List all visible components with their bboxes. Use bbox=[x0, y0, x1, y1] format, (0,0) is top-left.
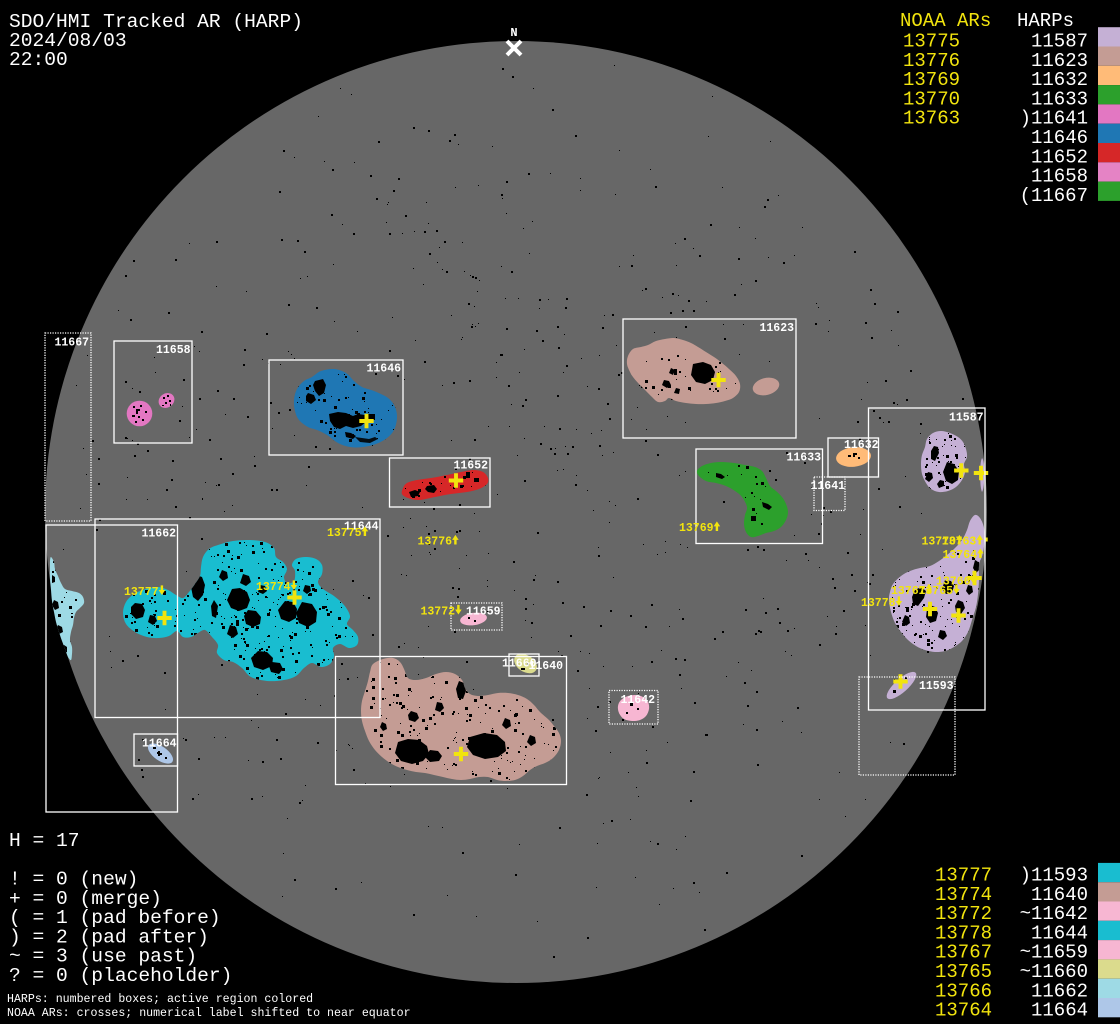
svg-text:13766: 13766 bbox=[936, 576, 971, 589]
svg-text:H = 17: H = 17 bbox=[9, 830, 80, 852]
svg-text:HARPs: numbered boxes; active: HARPs: numbered boxes; active region col… bbox=[7, 993, 313, 1006]
svg-text:13775: 13775 bbox=[327, 527, 362, 540]
svg-text:11641: 11641 bbox=[810, 480, 845, 493]
svg-text:HARPs: HARPs bbox=[1017, 10, 1074, 32]
svg-text:13778: 13778 bbox=[861, 597, 896, 610]
svg-text:11652: 11652 bbox=[453, 460, 488, 473]
svg-text:11646: 11646 bbox=[366, 363, 401, 376]
svg-text:11642: 11642 bbox=[620, 694, 655, 707]
svg-text:13769: 13769 bbox=[679, 522, 714, 535]
svg-text:11662: 11662 bbox=[141, 528, 176, 541]
svg-text:13777: 13777 bbox=[124, 586, 159, 599]
svg-text:(11667: (11667 bbox=[1020, 185, 1088, 207]
svg-text:22:00: 22:00 bbox=[9, 49, 68, 71]
svg-text:11667: 11667 bbox=[54, 337, 89, 350]
svg-text:11593: 11593 bbox=[919, 680, 954, 693]
svg-text:11623: 11623 bbox=[759, 322, 794, 335]
svg-text:11660: 11660 bbox=[502, 658, 537, 671]
svg-text:11658: 11658 bbox=[156, 344, 191, 357]
svg-text:13772: 13772 bbox=[421, 606, 456, 619]
svg-text:13764: 13764 bbox=[943, 549, 978, 562]
svg-text:13776: 13776 bbox=[418, 536, 453, 549]
svg-text:N: N bbox=[510, 26, 517, 40]
svg-text:11664: 11664 bbox=[142, 738, 177, 751]
svg-text:13763: 13763 bbox=[903, 108, 960, 130]
svg-text:? = 0 (placeholder): ? = 0 (placeholder) bbox=[9, 965, 232, 987]
svg-text:11633: 11633 bbox=[786, 452, 821, 465]
svg-text:13770: 13770 bbox=[922, 536, 957, 549]
svg-text:11587: 11587 bbox=[949, 412, 984, 425]
svg-text:11632: 11632 bbox=[844, 439, 879, 452]
svg-text:13767: 13767 bbox=[891, 585, 926, 598]
svg-text:13764: 13764 bbox=[935, 1000, 992, 1022]
svg-text:NOAA ARs: NOAA ARs bbox=[900, 10, 991, 32]
svg-text:13774: 13774 bbox=[256, 581, 291, 594]
svg-text:11659: 11659 bbox=[466, 606, 501, 619]
svg-text:11664: 11664 bbox=[1031, 1000, 1088, 1022]
svg-text:NOAA ARs: crosses; numerical l: NOAA ARs: crosses; numerical label shift… bbox=[7, 1007, 411, 1020]
